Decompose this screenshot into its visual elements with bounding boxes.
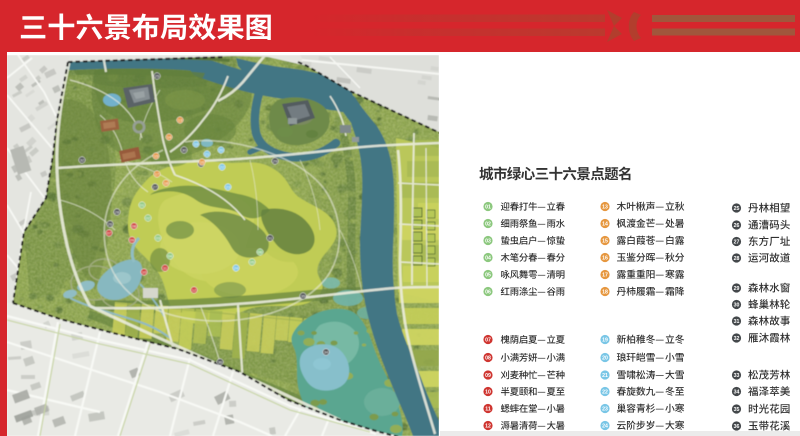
svg-text:02: 02	[485, 221, 491, 227]
svg-text:05: 05	[485, 272, 491, 278]
svg-text:24: 24	[234, 266, 238, 270]
svg-text:12: 12	[192, 288, 196, 292]
svg-text:19: 19	[194, 142, 198, 146]
svg-text:04: 04	[485, 255, 491, 261]
svg-text:14: 14	[167, 135, 171, 139]
svg-text:32: 32	[734, 336, 740, 342]
svg-text:10: 10	[485, 389, 491, 395]
svg-text:16: 16	[602, 255, 608, 261]
svg-text:02: 02	[146, 216, 150, 220]
svg-text:36: 36	[218, 360, 222, 364]
svg-text:28: 28	[734, 256, 740, 262]
svg-text:34: 34	[324, 350, 328, 354]
svg-text:20: 20	[219, 148, 223, 152]
svg-text:19: 19	[602, 337, 608, 343]
svg-text:13: 13	[178, 118, 182, 122]
svg-text:34: 34	[734, 389, 740, 395]
svg-text:01: 01	[485, 204, 491, 210]
svg-text:30: 30	[182, 148, 186, 152]
svg-text:28: 28	[115, 210, 119, 214]
svg-text:26: 26	[734, 223, 740, 229]
svg-text:07: 07	[107, 231, 111, 235]
svg-text:01: 01	[140, 203, 144, 207]
svg-text:21: 21	[602, 373, 608, 379]
svg-text:26: 26	[108, 222, 112, 226]
svg-text:08: 08	[485, 355, 491, 361]
svg-text:11: 11	[485, 406, 491, 412]
svg-text:27: 27	[734, 239, 740, 245]
svg-text:18: 18	[164, 181, 168, 185]
svg-text:17: 17	[602, 272, 608, 278]
svg-text:04: 04	[168, 254, 172, 258]
svg-text:10: 10	[142, 270, 146, 274]
svg-text:17: 17	[155, 172, 159, 176]
svg-text:06: 06	[258, 250, 262, 254]
svg-text:03: 03	[156, 236, 160, 240]
svg-text:35: 35	[734, 407, 740, 413]
svg-text:20: 20	[602, 355, 608, 361]
svg-text:11: 11	[163, 266, 167, 270]
svg-text:30: 30	[734, 302, 740, 308]
svg-text:16: 16	[200, 160, 204, 164]
svg-text:31: 31	[268, 236, 272, 240]
svg-text:06: 06	[485, 289, 491, 295]
svg-text:22: 22	[220, 165, 224, 169]
svg-text:12: 12	[485, 423, 491, 429]
svg-text:15: 15	[154, 154, 158, 158]
svg-text:13: 13	[602, 204, 608, 210]
svg-text:25: 25	[734, 206, 740, 212]
svg-text:15: 15	[602, 238, 608, 244]
svg-text:07: 07	[485, 337, 491, 343]
svg-text:09: 09	[130, 238, 134, 242]
svg-text:03: 03	[485, 238, 491, 244]
svg-text:18: 18	[602, 289, 608, 295]
svg-text:36: 36	[734, 424, 740, 430]
svg-text:25: 25	[155, 74, 159, 78]
svg-text:14: 14	[602, 221, 608, 227]
svg-text:23: 23	[602, 406, 608, 412]
svg-text:29: 29	[273, 159, 277, 163]
svg-text:09: 09	[485, 373, 491, 379]
svg-text:29: 29	[734, 286, 740, 292]
svg-text:08: 08	[132, 224, 136, 228]
svg-text:33: 33	[734, 373, 740, 379]
svg-text:22: 22	[602, 389, 608, 395]
svg-text:31: 31	[734, 319, 740, 325]
svg-text:23: 23	[226, 185, 230, 189]
svg-text:21: 21	[205, 152, 209, 156]
svg-text:32: 32	[80, 158, 84, 162]
svg-text:35: 35	[301, 294, 305, 298]
svg-text:05: 05	[250, 260, 254, 264]
svg-text:27: 27	[153, 185, 157, 189]
svg-text:24: 24	[602, 423, 608, 429]
